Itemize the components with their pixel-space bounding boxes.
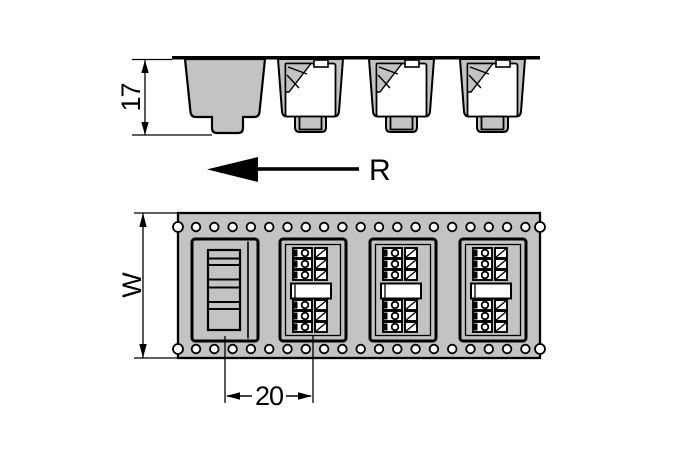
sprocket-hole — [448, 345, 457, 354]
sprocket-hole — [503, 345, 512, 354]
filled-pockets-side — [278, 59, 525, 132]
arrow-shaft — [255, 167, 359, 171]
sprocket-hole — [228, 345, 237, 354]
dimension-tape-width: W — [117, 213, 177, 358]
sprocket-hole — [338, 345, 347, 354]
plan-view: W 20 — [117, 213, 545, 411]
sprocket-hole — [503, 223, 512, 232]
sprocket-hole — [283, 345, 292, 354]
arrow-left-icon — [207, 157, 258, 182]
filled-pocket-side — [278, 59, 343, 132]
sprocket-hole — [521, 223, 530, 232]
sprocket-hole — [485, 223, 494, 232]
sprocket-hole — [283, 223, 292, 232]
sprocket-hole — [228, 223, 237, 232]
unwind-direction-label: R — [369, 154, 391, 187]
filled-pocket-plan — [280, 239, 346, 341]
sprocket-hole — [356, 345, 365, 354]
unwind-direction: R — [207, 154, 391, 187]
sprocket-hole — [448, 223, 457, 232]
sprocket-hole — [247, 345, 256, 354]
edge-notch — [173, 222, 183, 232]
sprocket-hole — [320, 345, 329, 354]
sprocket-hole — [210, 345, 219, 354]
sprocket-hole — [375, 345, 384, 354]
sprocket-hole — [375, 223, 384, 232]
sprocket-hole — [302, 223, 311, 232]
edge-notch — [535, 344, 545, 354]
sprocket-hole — [210, 223, 219, 232]
sprocket-hole — [338, 223, 347, 232]
sprocket-hole — [265, 345, 274, 354]
sprocket-hole — [393, 223, 402, 232]
sprocket-hole — [192, 345, 201, 354]
filled-pocket-side — [460, 59, 525, 132]
packaging-drawing: 17 R W — [0, 0, 697, 449]
arrowhead-up-icon — [141, 60, 148, 73]
edge-notch — [535, 222, 545, 232]
filled-pocket-side — [369, 59, 434, 132]
component-pitch-label: 20 — [255, 381, 283, 411]
pocket-depth-label: 17 — [116, 83, 146, 111]
tape-width-label: W — [117, 272, 147, 298]
filled-pocket-plan — [370, 239, 436, 341]
sprocket-hole — [466, 223, 475, 232]
sprocket-hole — [356, 223, 365, 232]
sprocket-hole — [265, 223, 274, 232]
sprocket-hole — [393, 345, 402, 354]
sprocket-hole — [466, 345, 475, 354]
sprocket-hole — [485, 345, 494, 354]
arrowhead-up-icon — [139, 213, 146, 227]
drawing-canvas: 17 R W — [0, 0, 697, 449]
arrowhead-down-icon — [139, 344, 146, 358]
sprocket-hole — [411, 223, 420, 232]
edge-notch — [173, 344, 183, 354]
sprocket-hole — [192, 223, 201, 232]
empty-pocket-plan — [192, 239, 258, 341]
sprocket-hole — [430, 223, 439, 232]
sprocket-hole — [411, 345, 420, 354]
sprocket-hole — [247, 223, 256, 232]
sprocket-hole — [320, 223, 329, 232]
sprocket-hole — [521, 345, 530, 354]
filled-pocket-plan — [460, 239, 526, 341]
sprocket-hole — [302, 345, 311, 354]
arrowhead-down-icon — [141, 122, 148, 135]
arrowhead-right-icon — [298, 392, 312, 399]
empty-pocket-side — [185, 59, 265, 133]
arrowhead-left-icon — [226, 392, 240, 399]
filled-pockets-plan — [280, 239, 526, 341]
sprocket-hole — [430, 345, 439, 354]
side-view: 17 — [116, 56, 540, 135]
